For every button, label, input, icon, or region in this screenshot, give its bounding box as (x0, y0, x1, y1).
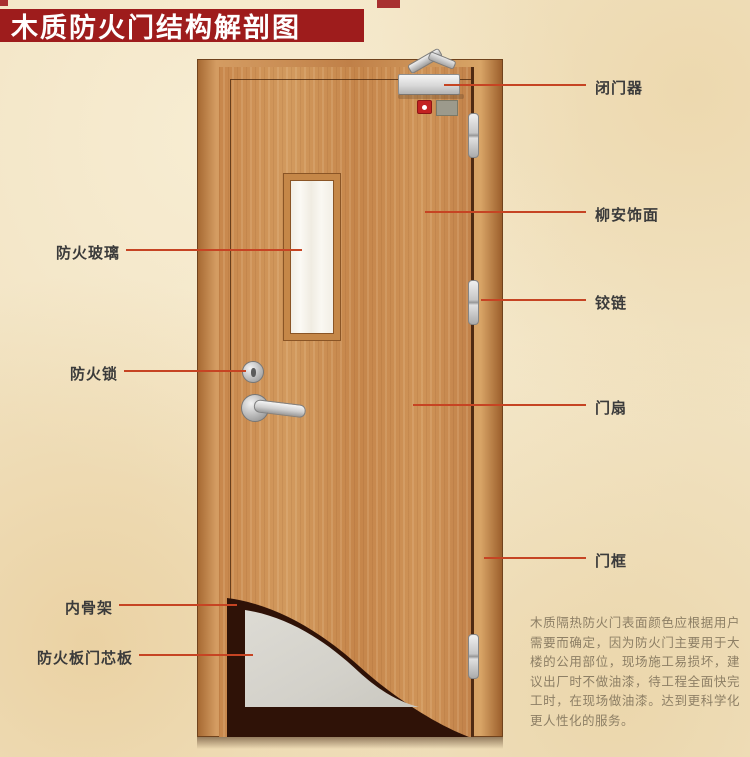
callout-line-closer (444, 84, 586, 86)
label-fire-board-core: 防火板门芯板 (0, 647, 133, 668)
callout-line-fire-lock (124, 370, 246, 372)
infographic-canvas: 木质防火门结构解剖图 (0, 0, 750, 757)
crop-artifact (377, 0, 400, 8)
label-hinge: 铰链 (595, 292, 627, 313)
hinge-middle (468, 280, 479, 325)
callout-line-fire-glass (126, 249, 302, 251)
callout-line-leaf (413, 404, 586, 406)
crop-artifact (0, 0, 8, 6)
door-closer-shadow (398, 94, 464, 99)
description-text: 木质隔热防火门表面颜色应根据用户需要而确定，因为防火门主要用于大楼的公用部位，现… (530, 614, 740, 731)
keyhole (251, 368, 256, 377)
label-lauan-veneer: 柳安饰面 (595, 204, 659, 225)
label-door-frame: 门框 (595, 550, 627, 571)
label-fire-lock: 防火锁 (0, 363, 118, 384)
title-banner: 木质防火门结构解剖图 (0, 9, 364, 42)
door-shadow (197, 737, 503, 749)
alarm-indicator-dot (422, 105, 427, 110)
hinge-top (468, 113, 479, 158)
callout-line-skeleton (119, 604, 237, 606)
fire-glass-window (283, 173, 341, 341)
label-door-leaf: 门扇 (595, 397, 627, 418)
cutaway-section (219, 588, 471, 737)
page-title: 木质防火门结构解剖图 (0, 6, 301, 45)
callout-line-core (139, 654, 253, 656)
wall-switch-box (436, 100, 458, 116)
label-inner-skeleton: 内骨架 (0, 597, 113, 618)
callout-line-door-frame (484, 557, 586, 559)
label-door-closer: 闭门器 (595, 77, 643, 98)
fire-board-core (245, 610, 419, 707)
callout-line-veneer (425, 211, 586, 213)
fire-lock-cylinder (242, 361, 264, 383)
label-fire-glass: 防火玻璃 (0, 242, 120, 263)
alarm-indicator (417, 100, 432, 114)
glass-pane (290, 180, 334, 334)
callout-line-hinge (481, 299, 586, 301)
